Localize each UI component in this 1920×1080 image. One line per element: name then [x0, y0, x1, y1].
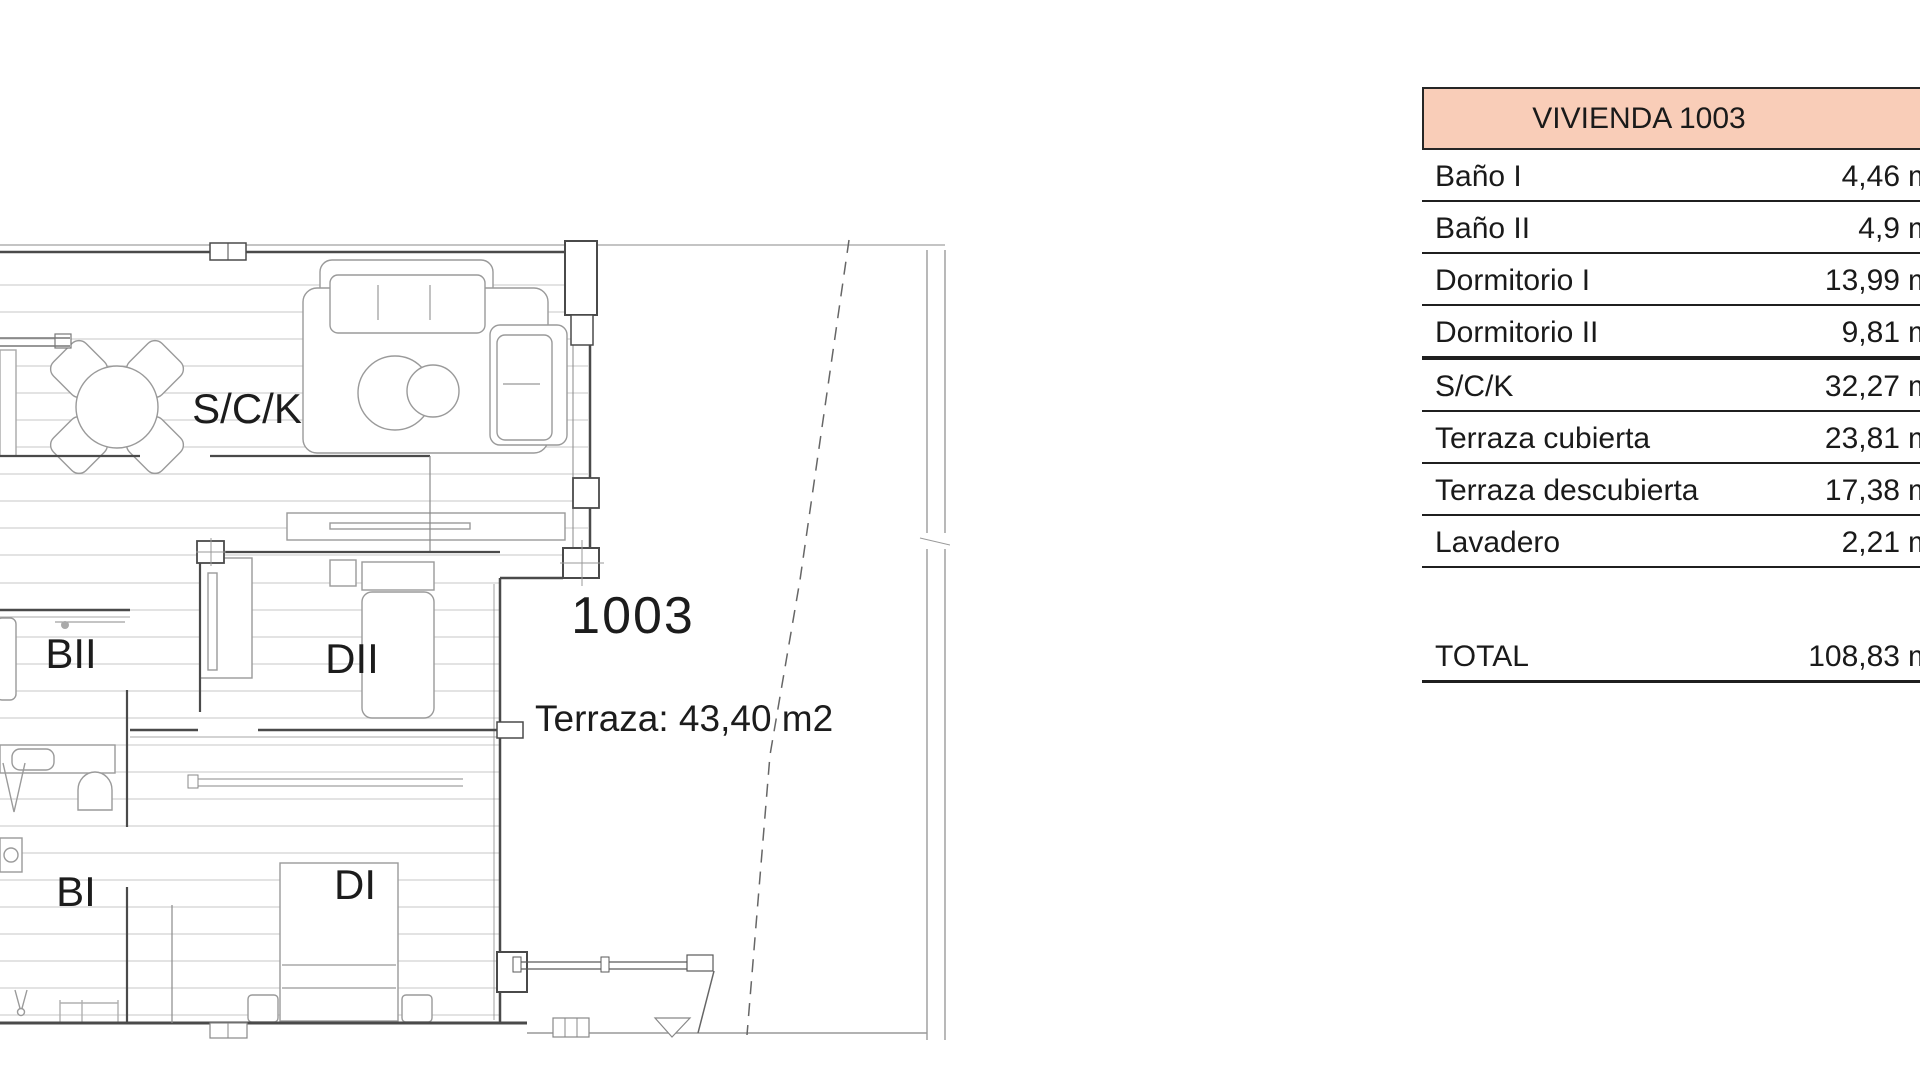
room-name: Terraza cubierta — [1422, 422, 1825, 456]
unit-number-label: 1003 — [571, 587, 695, 645]
table-total-row: TOTAL 108,83 m2 — [1422, 613, 1920, 683]
room-name: S/C/K — [1422, 370, 1825, 404]
table-title: VIVIENDA 1003 — [1424, 89, 1854, 148]
terrace-area-label: Terraza: 43,40 m2 — [535, 698, 833, 739]
room-label-dii: DII — [325, 635, 379, 682]
room-label-di: DI — [334, 861, 376, 908]
room-area-value: 4,9 — [1858, 212, 1900, 246]
room-area-value: 17,38 — [1825, 474, 1900, 508]
table-row: Lavadero 2,21 m2 — [1422, 516, 1920, 568]
table-row: Baño I 4,46 m2 — [1422, 150, 1920, 202]
room-name: Terraza descubierta — [1422, 474, 1825, 508]
kitchen-counter — [0, 350, 16, 456]
room-area-unit: m2 — [1908, 264, 1920, 298]
table-row: Terraza cubierta 23,81 m2 — [1422, 412, 1920, 464]
room-area-unit: m2 — [1908, 212, 1920, 246]
room-name: Dormitorio II — [1422, 316, 1842, 350]
room-label-bii: BII — [45, 630, 96, 677]
room-label-sck: S/C/K — [192, 385, 302, 432]
room-area-unit: m2 — [1908, 474, 1920, 508]
drain-marker — [655, 1018, 690, 1037]
room-area-unit: m2 — [1908, 370, 1920, 404]
room-name: Baño I — [1422, 160, 1842, 194]
room-area-value: 23,81 — [1825, 422, 1900, 456]
total-unit: m2 — [1908, 640, 1920, 674]
room-area-unit: m2 — [1908, 526, 1920, 560]
total-value: 108,83 — [1808, 640, 1900, 674]
floor-plan: S/C/K BII DII BI DI 1003 Terraza: 43,40 … — [0, 0, 950, 1080]
room-area-unit: m2 — [1908, 316, 1920, 350]
table-rows: Baño I 4,46 m2 Baño II 4,9 m2 Dormitorio… — [1422, 150, 1920, 568]
bathtub — [0, 618, 16, 700]
ne-pillar — [565, 241, 597, 315]
room-area-value: 4,46 — [1842, 160, 1900, 194]
door-knob — [61, 621, 69, 629]
room-area-value: 2,21 — [1842, 526, 1900, 560]
room-name: Lavadero — [1422, 526, 1842, 560]
sink — [12, 749, 54, 770]
table-row: Terraza descubierta 17,38 m2 — [1422, 464, 1920, 516]
room-area-unit: m2 — [1908, 160, 1920, 194]
sofa-set — [287, 260, 567, 540]
table-header: VIVIENDA 1003 — [1422, 87, 1920, 150]
table-row: Baño II 4,9 m2 — [1422, 202, 1920, 254]
total-label: TOTAL — [1422, 640, 1808, 674]
bedroom2-furniture — [200, 558, 434, 718]
round-table — [76, 366, 158, 448]
planter — [553, 1018, 589, 1037]
page: S/C/K BII DII BI DI 1003 Terraza: 43,40 … — [0, 0, 1920, 1080]
room-area-value: 9,81 — [1842, 316, 1900, 350]
table-row: Dormitorio II 9,81 m2 — [1422, 306, 1920, 360]
area-table: VIVIENDA 1003 Baño I 4,46 m2 Baño II 4,9… — [1422, 87, 1920, 683]
room-area-unit: m2 — [1908, 422, 1920, 456]
room-name: Baño II — [1422, 212, 1858, 246]
room-area-value: 13,99 — [1825, 264, 1900, 298]
room-area-value: 32,27 — [1825, 370, 1900, 404]
room-name: Dormitorio I — [1422, 264, 1825, 298]
room-label-bi: BI — [56, 868, 96, 915]
table-row: S/C/K 32,27 m2 — [1422, 360, 1920, 412]
property-dashed-line — [747, 240, 849, 1035]
toilet — [78, 772, 112, 810]
table-row: Dormitorio I 13,99 m2 — [1422, 254, 1920, 306]
